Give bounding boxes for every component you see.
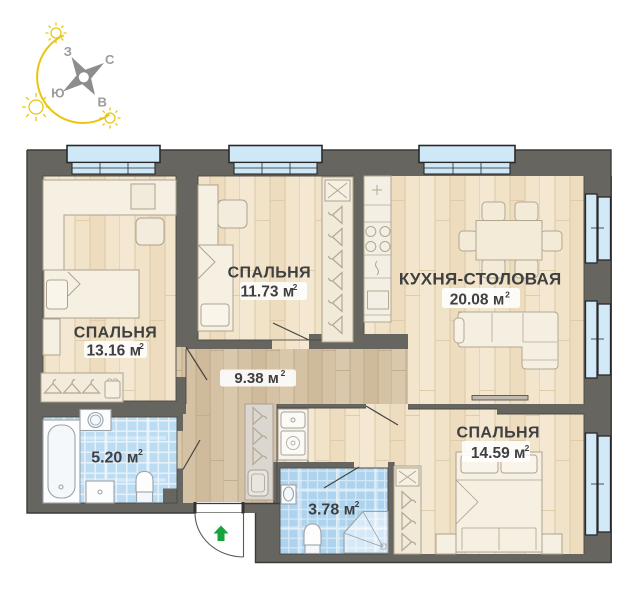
svg-text:СПАЛЬНЯ: СПАЛЬНЯ bbox=[457, 425, 540, 442]
svg-text:2: 2 bbox=[293, 282, 298, 292]
svg-text:2: 2 bbox=[355, 499, 360, 509]
svg-text:3.78 м: 3.78 м bbox=[308, 502, 355, 519]
svg-text:13.16 м: 13.16 м bbox=[87, 343, 142, 360]
svg-text:11.73 м: 11.73 м bbox=[241, 284, 295, 301]
svg-text:2: 2 bbox=[281, 368, 286, 378]
svg-text:2: 2 bbox=[525, 443, 530, 453]
svg-text:З: З bbox=[64, 44, 72, 59]
svg-text:2: 2 bbox=[139, 341, 144, 351]
svg-text:9.38 м: 9.38 м bbox=[234, 370, 278, 387]
svg-text:С: С bbox=[105, 52, 115, 67]
svg-text:20.08 м: 20.08 м bbox=[450, 292, 505, 309]
svg-text:2: 2 bbox=[505, 290, 510, 300]
svg-text:КУХНЯ-СТОЛОВАЯ: КУХНЯ-СТОЛОВАЯ bbox=[399, 270, 562, 289]
svg-text:СПАЛЬНЯ: СПАЛЬНЯ bbox=[228, 265, 311, 282]
svg-text:5.20 м: 5.20 м bbox=[91, 449, 138, 466]
svg-text:2: 2 bbox=[138, 447, 143, 457]
svg-text:Ю: Ю bbox=[51, 85, 64, 100]
svg-text:14.59 м: 14.59 м bbox=[471, 445, 526, 462]
svg-text:СПАЛЬНЯ: СПАЛЬНЯ bbox=[74, 325, 157, 342]
svg-text:В: В bbox=[98, 94, 107, 109]
